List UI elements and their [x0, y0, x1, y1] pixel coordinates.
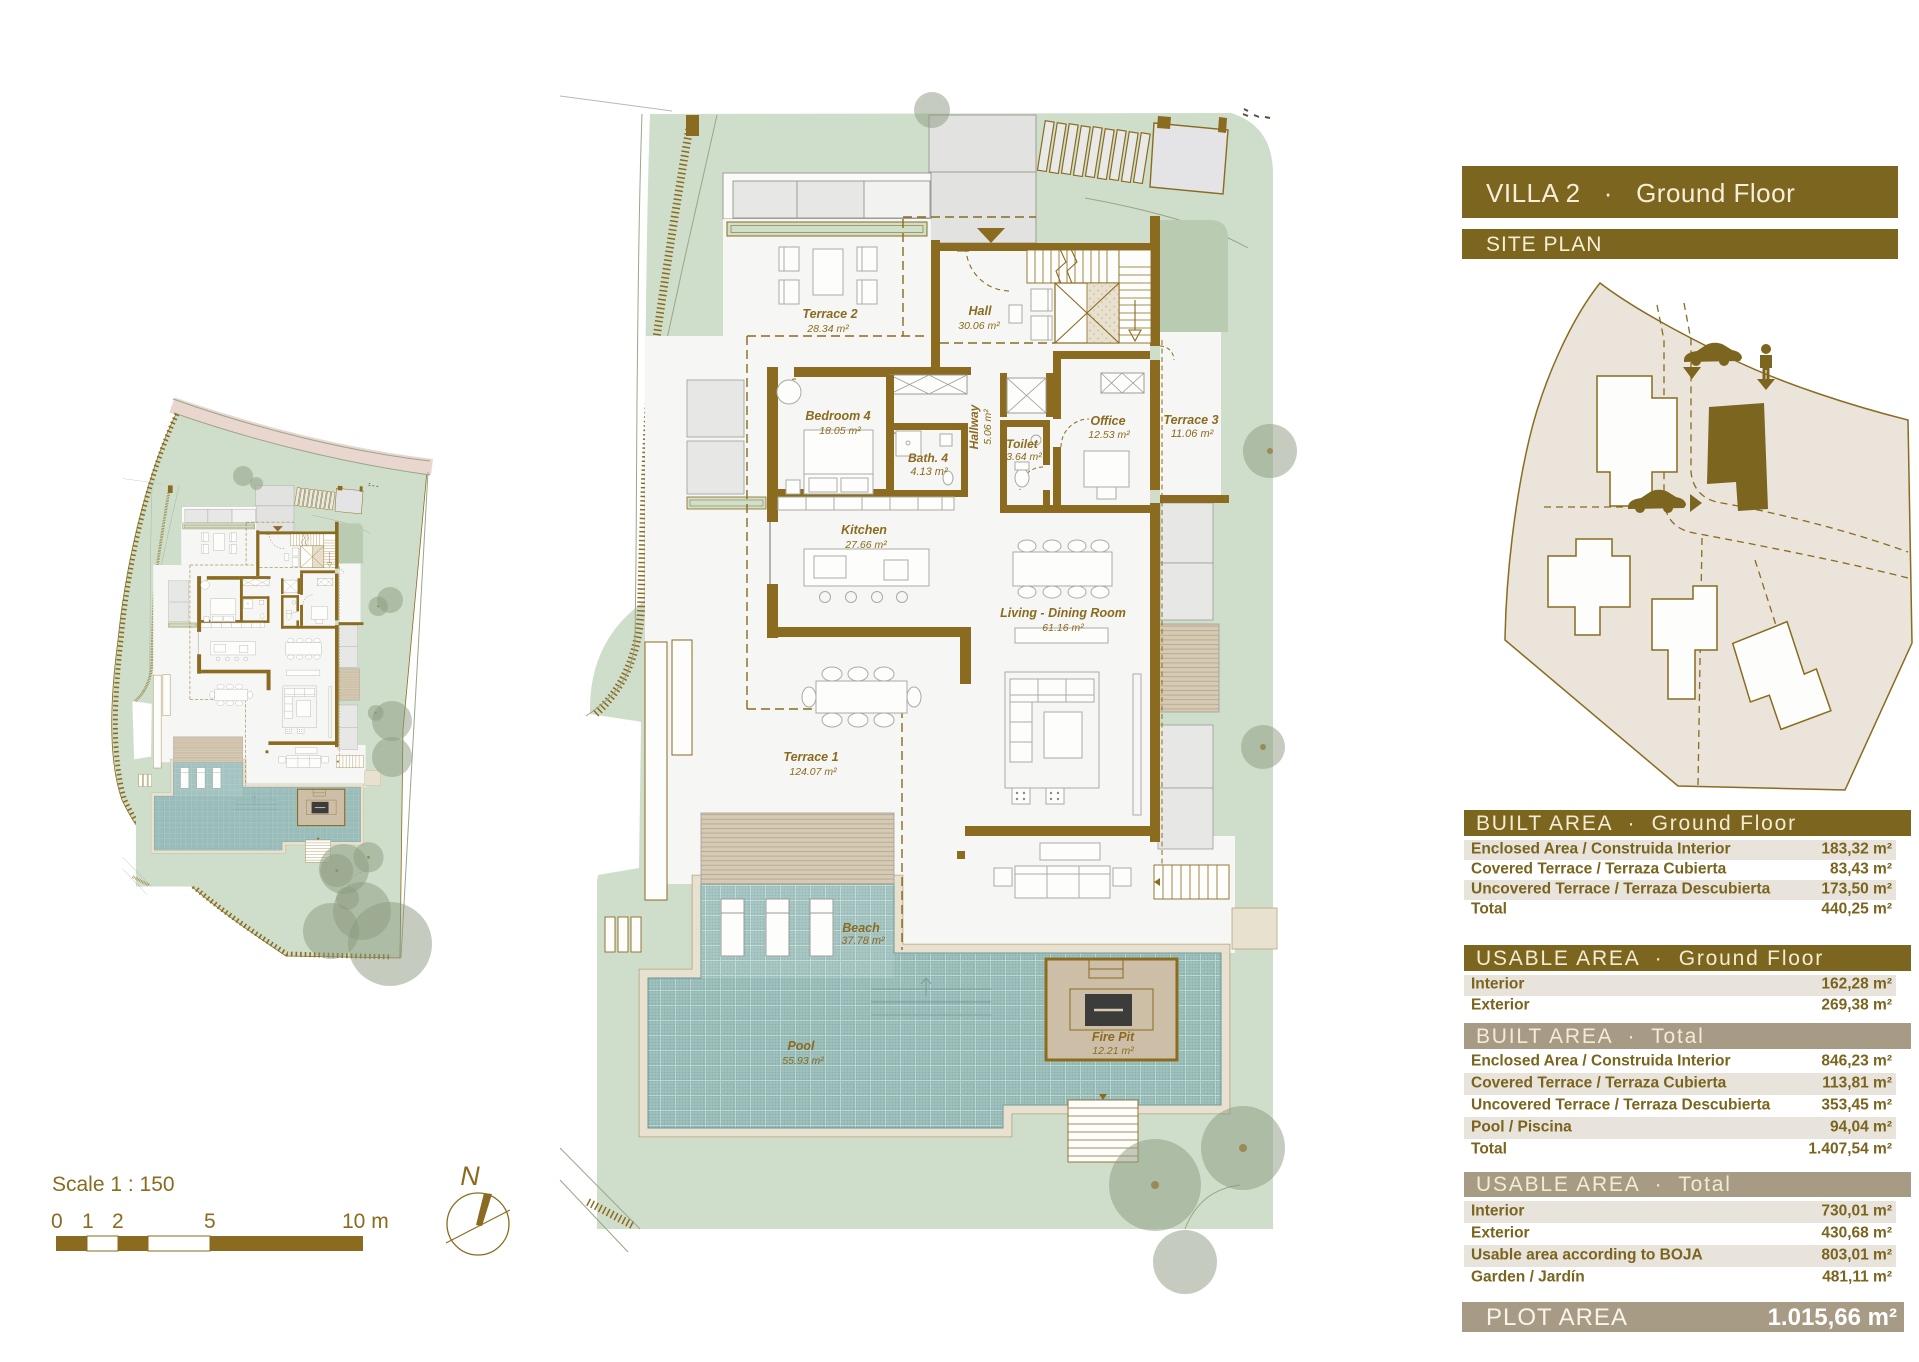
svg-text:Terrace 1: Terrace 1 [783, 750, 838, 764]
svg-text:10 m: 10 m [342, 1210, 389, 1233]
svg-text:12.53 m²: 12.53 m² [1088, 429, 1130, 441]
svg-text:61.16 m²: 61.16 m² [1042, 622, 1084, 634]
svg-text:Living - Dining Room: Living - Dining Room [1000, 606, 1126, 620]
svg-text:Fire Pit: Fire Pit [1092, 1030, 1135, 1044]
svg-text:Scale 1 : 150: Scale 1 : 150 [52, 1173, 175, 1196]
svg-text:2: 2 [112, 1210, 124, 1233]
svg-text:Bedroom 4: Bedroom 4 [805, 409, 870, 423]
svg-text:Pool: Pool [787, 1039, 815, 1053]
svg-text:Kitchen: Kitchen [841, 523, 887, 537]
svg-text:Terrace 2: Terrace 2 [802, 307, 857, 321]
svg-text:18.05 m²: 18.05 m² [819, 425, 861, 437]
svg-text:1: 1 [82, 1210, 94, 1233]
svg-text:4.13 m²: 4.13 m² [910, 466, 948, 478]
svg-text:Terrace 3: Terrace 3 [1163, 413, 1218, 427]
svg-text:0: 0 [51, 1210, 63, 1233]
svg-text:Office: Office [1090, 414, 1125, 428]
svg-text:12.21 m²: 12.21 m² [1092, 1045, 1134, 1057]
svg-text:27.66 m²: 27.66 m² [844, 539, 887, 551]
svg-text:Beach: Beach [842, 921, 880, 935]
svg-text:37.78 m²: 37.78 m² [841, 935, 885, 947]
svg-text:Hallway: Hallway [967, 403, 981, 449]
svg-text:55.93 m²: 55.93 m² [782, 1055, 824, 1067]
svg-text:3.64 m²: 3.64 m² [1006, 451, 1042, 463]
svg-text:5.06 m²: 5.06 m² [982, 409, 994, 445]
svg-text:Hall: Hall [969, 304, 992, 318]
svg-text:Bath. 4: Bath. 4 [908, 451, 948, 465]
svg-text:28.34 m²: 28.34 m² [806, 323, 849, 335]
svg-text:30.06 m²: 30.06 m² [958, 320, 1000, 332]
svg-text:N: N [460, 1161, 480, 1191]
svg-text:11.06 m²: 11.06 m² [1171, 428, 1214, 440]
svg-text:Toilet: Toilet [1006, 437, 1039, 451]
svg-text:5: 5 [204, 1210, 216, 1233]
svg-text:124.07 m²: 124.07 m² [789, 766, 837, 778]
